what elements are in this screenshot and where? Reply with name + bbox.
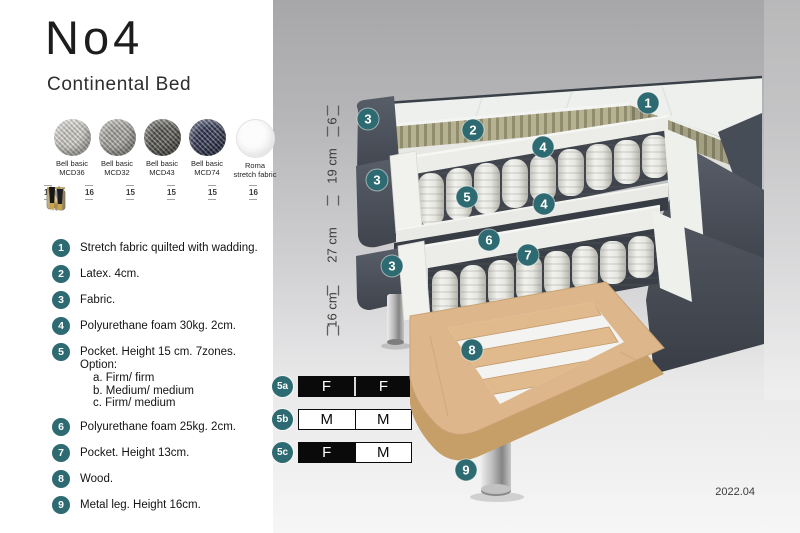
callout-6: 6 — [478, 229, 500, 251]
svg-text:6: 6 — [485, 233, 492, 248]
dimension-ruler: 6 19 cm 27 cm 16 cm — [324, 106, 339, 335]
callout-8: 8 — [461, 339, 483, 361]
dimension-label: 19 cm — [324, 148, 339, 183]
callout-3-bottom: 3 — [381, 255, 403, 277]
dimension-label: 6 — [324, 117, 339, 124]
svg-text:3: 3 — [388, 259, 395, 274]
svg-text:5: 5 — [463, 190, 470, 205]
svg-text:9: 9 — [462, 463, 469, 478]
svg-text:2: 2 — [469, 123, 476, 138]
callout-2: 2 — [462, 119, 484, 141]
callout-5: 5 — [456, 186, 478, 208]
svg-text:1: 1 — [644, 96, 651, 111]
svg-text:3: 3 — [364, 112, 371, 127]
svg-text:4: 4 — [540, 197, 548, 212]
callout-9: 9 — [455, 459, 477, 481]
callout-7: 7 — [517, 244, 539, 266]
callout-4-lower: 4 — [533, 193, 555, 215]
svg-text:4: 4 — [539, 140, 547, 155]
svg-text:8: 8 — [468, 343, 475, 358]
callout-1: 1 — [637, 92, 659, 114]
svg-text:3: 3 — [373, 173, 380, 188]
callout-3-middle: 3 — [366, 169, 388, 191]
callout-3-top: 3 — [357, 108, 379, 130]
dimension-label: 27 cm — [324, 227, 339, 262]
dimension-label: 16 cm — [324, 292, 339, 327]
rear-metal-leg — [387, 294, 404, 342]
callout-4-upper: 4 — [532, 136, 554, 158]
svg-text:7: 7 — [524, 248, 531, 263]
bed-cutaway-illustration: 6 19 cm 27 cm 16 cm — [0, 0, 800, 533]
